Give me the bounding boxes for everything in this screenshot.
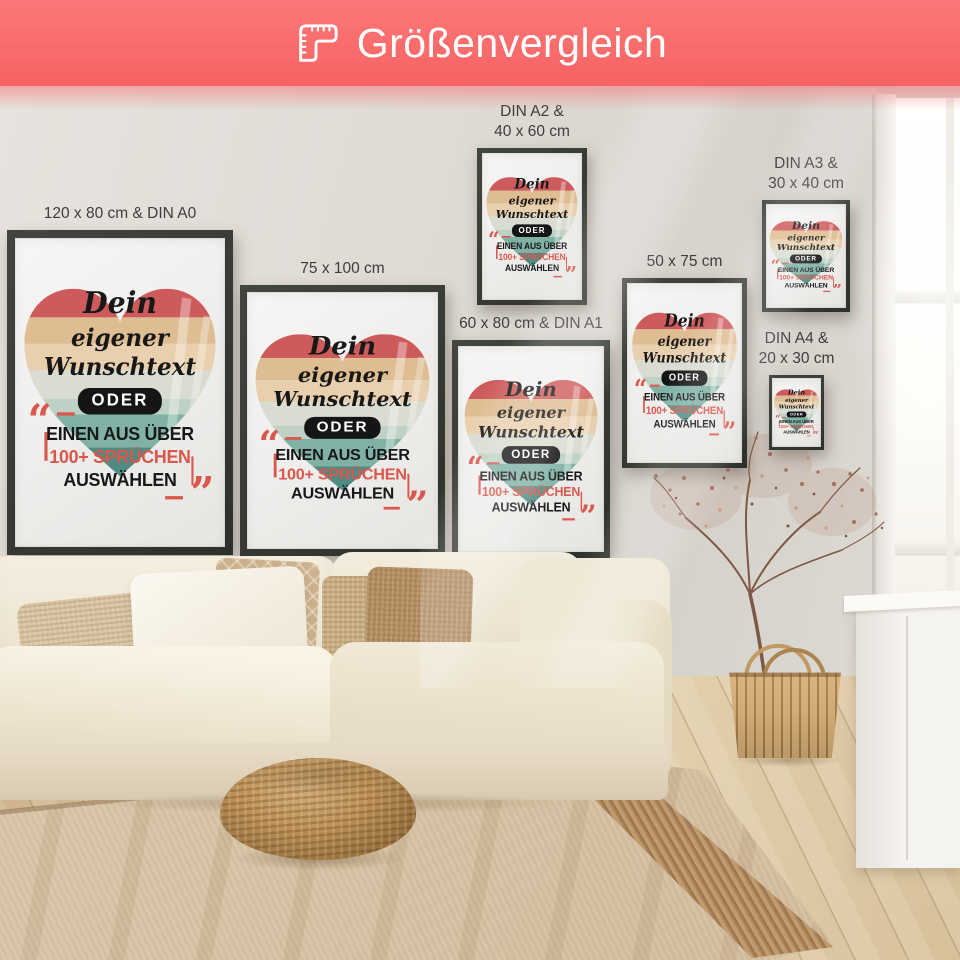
poster-text-wunschtext: Wunschtext [247,387,438,411]
quote-dash [285,437,301,440]
poster-paper: Dein eigener Wunschtext ODER “ EINEN AUS… [458,346,604,552]
poster-frame: Dein eigener Wunschtext ODER “ EINEN AUS… [769,375,824,450]
poster-size-label: DIN A4 & 20 x 30 cm [759,329,835,369]
poster-text-wunschtext: Wunschtext [458,423,604,442]
poster-paper: Dein eigener Wunschtext ODER “ EINEN AUS… [15,238,225,547]
poster-din-a2-40x60: DIN A2 & 40 x 60 cm Dein eigener Wunscht… [477,148,587,305]
poster-text-wunschtext: Wunschtext [766,243,846,253]
poster-text-wunschtext: Wunschtext [772,404,821,410]
poster-paper: Dein eigener Wunschtext ODER “ EINEN AUS… [627,283,742,463]
woven-basket-planter [720,670,850,758]
poster-frame: Dein eigener Wunschtext ODER “ EINEN AUS… [452,340,610,558]
poster-text-einen-aus-ueber: EINEN AUS ÜBER [482,241,582,252]
poster-frame: Dein eigener Wunschtext ODER “ EINEN AUS… [240,285,445,556]
quote-dash [709,433,719,435]
quote-dash [384,507,400,510]
close-quote-icon: ” [813,430,819,440]
poster-text-oder: ODER [304,417,381,439]
poster-text-oder: ODER [787,411,807,417]
poster-text-oder: ODER [790,254,822,263]
poster-frame: Dein eigener Wunschtext ODER “ EINEN AUS… [477,148,587,305]
poster-paper: Dein eigener Wunschtext ODER “ EINEN AUS… [772,378,821,447]
poster-text-einen-aus-ueber: EINEN AUS ÜBER [627,391,742,404]
poster-text-eigener: eigener [627,333,742,350]
poster-text-eigener: eigener [15,324,225,353]
close-quote-icon: ” [833,283,842,298]
poster-text-einen-aus-ueber: EINEN AUS ÜBER [766,266,846,273]
poster-text-oder: ODER [661,370,707,385]
close-quote-icon: ” [580,502,597,531]
poster-text-eigener: eigener [247,364,438,388]
poster-text-einen-aus-ueber: EINEN AUS ÜBER [458,470,604,485]
poster-text-sprueche: 100+ SPRÜCHEN [482,252,582,263]
poster-text-dein: Dein [772,389,821,397]
poster-text-dein: Dein [458,378,604,401]
quote-dash [487,462,499,464]
poster-din-a4-20x30: DIN A4 & 20 x 30 cm Dein eigener Wunscht… [769,375,824,450]
size-comparison-banner: Größenvergleich [0,0,960,86]
quote-dash [782,417,786,418]
poster-text-dein: Dein [627,311,742,331]
poster-text-dein: Dein [766,220,846,232]
poster-text-wunschtext: Wunschtext [15,353,225,382]
poster-paper: Dein eigener Wunschtext ODER “ EINEN AUS… [482,153,582,300]
quote-dash [562,518,574,520]
poster-text-oder: ODER [78,388,162,414]
quote-dash [165,496,183,499]
page-title: Größenvergleich [357,23,668,64]
poster-50x75: 50 x 75 cm Dein eigener Wunschtext ODER … [622,278,747,468]
quote-dash [57,412,75,415]
poster-size-label: 75 x 100 cm [300,259,384,279]
poster-size-label: 60 x 80 cm & DIN A1 [459,314,603,334]
quote-dash [502,236,511,238]
poster-text-wunschtext: Wunschtext [627,350,742,367]
poster-size-label: 120 x 80 cm & DIN A0 [44,204,197,224]
poster-frame: Dein eigener Wunschtext ODER “ EINEN AUS… [622,278,747,468]
poster-text-eigener: eigener [458,403,604,422]
poster-size-label: DIN A3 & 30 x 40 cm [768,154,844,194]
quote-dash [554,276,563,278]
poster-paper: Dein eigener Wunschtext ODER “ EINEN AUS… [247,292,438,549]
quote-dash [782,263,789,264]
poster-text-eigener: eigener [766,233,846,243]
poster-text-einen-aus-ueber: EINEN AUS ÜBER [15,423,225,445]
close-quote-icon: ” [565,264,577,285]
poster-frame: Dein eigener Wunschtext ODER “ EINEN AUS… [762,200,850,312]
size-comparison-product-image: 120 x 80 cm & DIN A0 Dein eigener Wunsch… [0,0,960,960]
poster-120x80-din-a0: 120 x 80 cm & DIN A0 Dein eigener Wunsch… [7,230,233,555]
poster-size-label: 50 x 75 cm [647,252,723,272]
poster-75x100: 75 x 100 cm Dein eigener Wunschtext ODER… [240,285,445,556]
poster-60x80-din-a1: 60 x 80 cm & DIN A1 Dein eigener Wunscht… [452,340,610,558]
close-quote-icon: ” [406,487,428,524]
poster-text-dein: Dein [482,176,582,192]
poster-text-oder: ODER [502,446,561,464]
poster-text-einen-aus-ueber: EINEN AUS ÜBER [247,446,438,464]
quote-dash [807,436,811,437]
poster-text-sprueche: 100+ SPRÜCHEN [627,405,742,418]
banner-glow [0,84,960,110]
poster-text-oder: ODER [512,224,552,237]
close-quote-icon: ” [190,472,214,516]
quote-dash [823,291,830,292]
quote-dash [650,385,660,387]
folding-ruler-icon [293,20,339,66]
poster-text-dein: Dein [15,287,225,321]
poster-din-a3-30x40: DIN A3 & 30 x 40 cm Dein eigener Wunscht… [762,200,850,312]
close-quote-icon: ” [723,419,736,445]
poster-text-eigener: eigener [482,194,582,208]
woven-pouf [220,758,416,860]
poster-text-wunschtext: Wunschtext [482,208,582,222]
poster-paper: Dein eigener Wunschtext ODER “ EINEN AUS… [766,204,846,308]
poster-text-dein: Dein [247,332,438,360]
poster-frame: Dein eigener Wunschtext ODER “ EINEN AUS… [7,230,233,555]
